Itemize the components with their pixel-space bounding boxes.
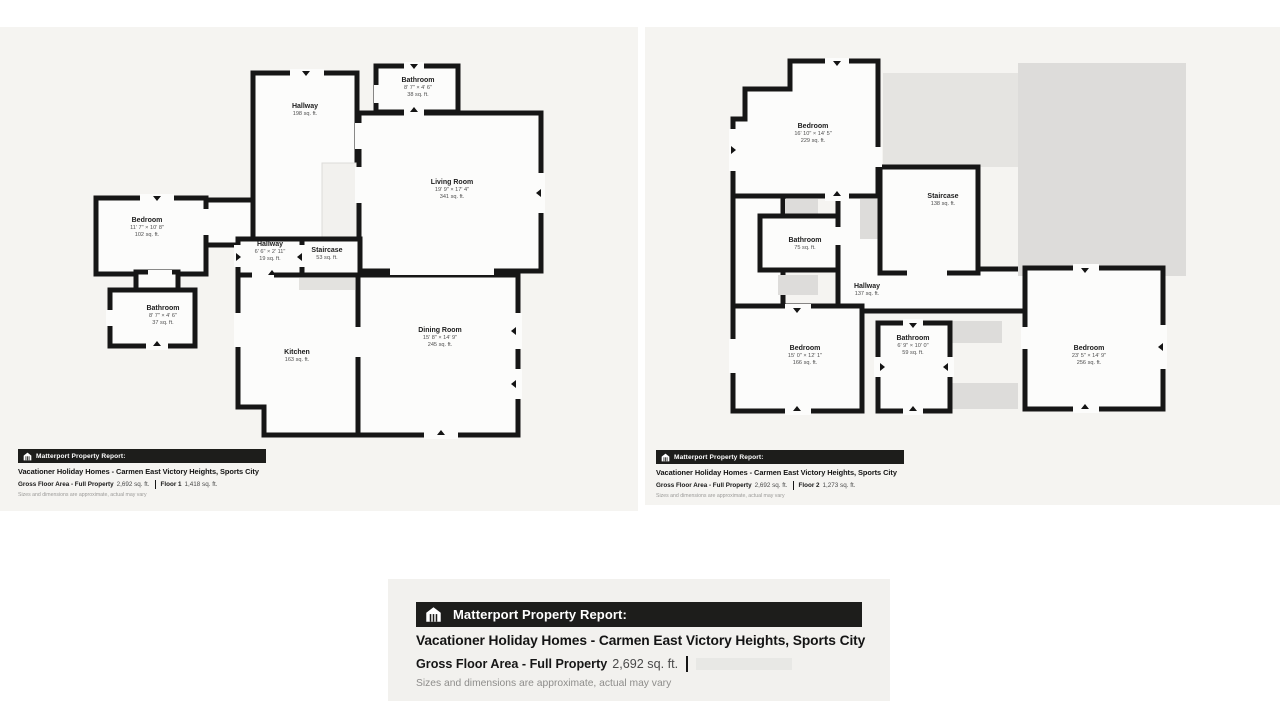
room-area: 19 sq. ft. [255, 256, 286, 263]
room-name: Hallway [292, 103, 318, 111]
divider [155, 480, 156, 489]
room-name: Dining Room [418, 327, 462, 335]
divider [686, 656, 688, 672]
matterport-logo-icon [661, 453, 670, 462]
report-bar: Matterport Property Report: [416, 602, 862, 627]
room-name: Bathroom [788, 237, 821, 245]
room-area: 102 sq. ft. [130, 232, 164, 239]
floor-area-value: 1,273 sq. ft. [823, 482, 856, 489]
room-name: Hallway [854, 283, 880, 291]
room-area: 245 sq. ft. [418, 342, 462, 349]
room-label: Hallway 137 sq. ft. [854, 283, 880, 298]
room-dims: 16' 10" × 14' 5" [794, 131, 831, 138]
floor2-report-footer: Matterport Property Report: Vacationer H… [656, 450, 976, 499]
room-dims: 23' 5" × 14' 9" [1072, 353, 1106, 360]
room-area: 198 sq. ft. [292, 111, 318, 118]
room-name: Kitchen [284, 349, 310, 357]
room-label: Bedroom 11' 7" × 10' 8" 102 sq. ft. [130, 217, 164, 239]
room-dims: 6' 9" × 10' 0" [896, 343, 929, 350]
room-name: Living Room [431, 179, 473, 187]
room-area: 75 sq. ft. [788, 245, 821, 252]
room-area: 166 sq. ft. [788, 360, 822, 367]
room-area: 53 sq. ft. [311, 255, 342, 262]
floor2-panel: Bedroom 16' 10" × 14' 5" 229 sq. ft. Sta… [645, 27, 1280, 505]
property-title: Vacationer Holiday Homes - Carmen East V… [416, 633, 865, 648]
floor1-report-footer: Matterport Property Report: Vacationer H… [18, 449, 338, 498]
report-bar: Matterport Property Report: [18, 449, 266, 463]
room-label: Bedroom 15' 0" × 12' 1" 166 sq. ft. [788, 345, 822, 367]
room-name: Bedroom [1072, 345, 1106, 353]
room-area: 37 sq. ft. [146, 320, 179, 327]
report-bar-label: Matterport Property Report: [674, 454, 764, 461]
matterport-logo-icon [23, 452, 32, 461]
room-dims: 6' 6" × 2' 11" [255, 249, 286, 256]
room-area: 163 sq. ft. [284, 357, 310, 364]
disclaimer: Sizes and dimensions are approximate, ac… [656, 493, 976, 499]
room-label: Bathroom 8' 7" × 4' 6" 37 sq. ft. [146, 305, 179, 327]
room-name: Staircase [927, 193, 958, 201]
room-name: Bedroom [788, 345, 822, 353]
room-label: Living Room 19' 9" × 17' 4" 341 sq. ft. [431, 179, 473, 201]
report-bar: Matterport Property Report: [656, 450, 904, 464]
gross-area-value: 2,692 sq. ft. [612, 657, 678, 671]
room-dims: 15' 8" × 14' 9" [418, 335, 462, 342]
room-label: Bedroom 23' 5" × 14' 9" 256 sq. ft. [1072, 345, 1106, 367]
room-dims: 11' 7" × 10' 8" [130, 225, 164, 232]
room-area: 341 sq. ft. [431, 194, 473, 201]
property-title: Vacationer Holiday Homes - Carmen East V… [18, 467, 338, 476]
room-dims: 8' 7" × 4' 6" [401, 85, 434, 92]
room-dims: 19' 9" × 17' 4" [431, 187, 473, 194]
floor-label: Floor 2 [799, 482, 820, 489]
room-label: Bathroom 8' 7" × 4' 6" 38 sq. ft. [401, 77, 434, 99]
room-dims: 8' 7" × 4' 6" [146, 313, 179, 320]
area-summary-line: Gross Floor Area - Full Property 2,692 s… [656, 481, 976, 490]
room-area: 38 sq. ft. [401, 92, 434, 99]
divider [793, 481, 794, 490]
gray-void-region [299, 278, 355, 290]
room-label: Hallway 198 sq. ft. [292, 103, 318, 118]
gross-area-value: 2,692 sq. ft. [755, 482, 788, 489]
room-label: Dining Room 15' 8" × 14' 9" 245 sq. ft. [418, 327, 462, 349]
floor-area-value: 1,418 sq. ft. [185, 481, 218, 488]
property-title: Vacationer Holiday Homes - Carmen East V… [656, 468, 976, 477]
room-label: Kitchen 163 sq. ft. [284, 349, 310, 364]
room-dims: 15' 0" × 12' 1" [788, 353, 822, 360]
gross-area-label: Gross Floor Area - Full Property [18, 481, 114, 488]
floor-label: Floor 1 [161, 481, 182, 488]
room-area: 137 sq. ft. [854, 291, 880, 298]
room-area: 138 sq. ft. [927, 201, 958, 208]
room-area: 59 sq. ft. [896, 350, 929, 357]
floor1-plan-drawing [0, 27, 638, 511]
disclaimer: Sizes and dimensions are approximate, ac… [18, 492, 338, 498]
room-label: Staircase 138 sq. ft. [927, 193, 958, 208]
room-name: Hallway [255, 241, 286, 249]
stair-void-region [322, 163, 358, 241]
area-summary-line: Gross Floor Area - Full Property 2,692 s… [18, 480, 338, 489]
room-name: Bathroom [146, 305, 179, 313]
report-bar-label: Matterport Property Report: [453, 607, 627, 622]
property-summary-card: Matterport Property Report: Vacationer H… [388, 579, 890, 701]
report-bar-label: Matterport Property Report: [36, 453, 126, 460]
faded-text-artifact [696, 658, 792, 670]
matterport-logo-icon [425, 606, 442, 623]
gross-area-label: Gross Floor Area - Full Property [416, 657, 607, 671]
disclaimer: Sizes and dimensions are approximate, ac… [416, 678, 671, 689]
room-name: Staircase [311, 247, 342, 255]
matterport-floorplan-report-page: Hallway 198 sq. ft. Bathroom 8' 7" × 4' … [0, 0, 1280, 720]
room-area: 256 sq. ft. [1072, 360, 1106, 367]
gross-area-value: 2,692 sq. ft. [117, 481, 150, 488]
room-name: Bedroom [794, 123, 831, 131]
room-name: Bedroom [130, 217, 164, 225]
floor1-panel: Hallway 198 sq. ft. Bathroom 8' 7" × 4' … [0, 27, 638, 511]
room-label: Hallway 6' 6" × 2' 11" 19 sq. ft. [255, 241, 286, 263]
room-name: Bathroom [401, 77, 434, 85]
room-label: Bathroom 6' 9" × 10' 0" 59 sq. ft. [896, 335, 929, 357]
room-label: Staircase 53 sq. ft. [311, 247, 342, 262]
room-label: Bathroom 75 sq. ft. [788, 237, 821, 252]
floor2-plan-drawing [645, 27, 1280, 505]
room-name: Bathroom [896, 335, 929, 343]
room-label: Bedroom 16' 10" × 14' 5" 229 sq. ft. [794, 123, 831, 145]
gross-area-label: Gross Floor Area - Full Property [656, 482, 752, 489]
area-summary-line: Gross Floor Area - Full Property 2,692 s… [416, 656, 792, 672]
room-area: 229 sq. ft. [794, 138, 831, 145]
